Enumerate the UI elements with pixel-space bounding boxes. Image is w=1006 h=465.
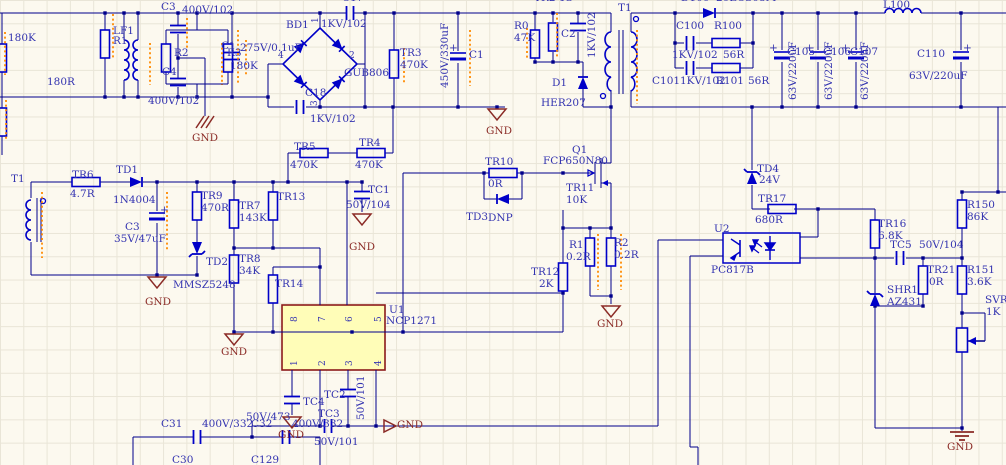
label-val-c3a: 400V/102	[182, 5, 233, 16]
resistor-symbol	[0, 108, 7, 136]
label-val-r101: 56R	[748, 76, 769, 87]
label-val-tr9: 470R	[201, 203, 229, 214]
label-ref-tr3: TR3	[400, 48, 422, 59]
label-val-r0: 47K	[514, 33, 535, 44]
diode-symbol[interactable]	[130, 177, 142, 187]
label-ref-t1-main: T1	[618, 3, 632, 14]
label-ref-shr1: SHR1	[887, 285, 918, 296]
label-val-tr12: 2K	[539, 279, 554, 290]
label-ref-c110: C110	[917, 49, 945, 60]
label-ref-tr8: TR8	[239, 254, 261, 265]
trimpot-wiper-arrow	[968, 337, 985, 345]
diode-symbol[interactable]	[578, 77, 588, 89]
resistor-symbol	[230, 200, 239, 228]
label-plus-c106: +	[805, 43, 814, 54]
label-val-tr10: 0R	[488, 179, 503, 190]
label-ref-c18: C18	[305, 88, 326, 99]
label-ref-tr7: TR7	[239, 201, 261, 212]
label-val-tr21: 0R	[929, 277, 944, 288]
label-part-u1: NCP1271	[386, 316, 437, 327]
label-ref-c100: C100	[676, 21, 704, 32]
label-pin-bd1-4: 4	[278, 51, 284, 62]
label-ref-c129-clipped: C129	[251, 455, 279, 465]
label-val-tr6: 4.7R	[70, 189, 95, 200]
label-ref-lf1: LF1	[113, 26, 134, 37]
label-ref-r0: R0	[514, 21, 529, 32]
resistor-symbol	[958, 266, 967, 294]
label-ref-r100: R100	[714, 21, 742, 32]
transformer-t1-aux-winding[interactable]	[26, 200, 31, 240]
label-val-c18: 1KV/102	[310, 114, 356, 125]
label-part-q1: FCP650N80	[543, 156, 608, 167]
label-val-tc5: 50V/104	[919, 240, 964, 251]
resistor-symbol	[958, 200, 967, 228]
polarity-dot	[634, 17, 639, 22]
label-val-tc3: 50V/101	[314, 437, 359, 448]
label-net-gnd-8: GND	[597, 319, 623, 330]
zener-diode-symbol[interactable]	[867, 291, 883, 306]
label-ref-tr4: TR4	[359, 138, 381, 149]
label-val-td3: DNP	[488, 213, 513, 224]
label-val-tr7: 143K	[239, 213, 267, 224]
label-ref-tr16: TR16	[878, 219, 906, 230]
label-val-c32: 400V/332	[292, 419, 343, 430]
label-ref-tc5: TC5	[890, 240, 912, 251]
label-ref-tr10: TR10	[485, 157, 513, 168]
label-ref-r101: R101	[716, 76, 744, 87]
schematic-canvas[interactable]: 180KR1R2R3180K180RLF1C3400V/102C4400V/10…	[0, 0, 1006, 465]
label-val-c106: 63V/220uF	[824, 41, 835, 100]
label-part-td2: MMSZ5248	[173, 280, 236, 291]
label-part-d100-clipped: 20ECS08M	[716, 0, 776, 4]
label-val-svr1: 1K	[986, 307, 1001, 318]
label-ref-r1-sense: R1	[569, 240, 584, 251]
resistor-symbol	[0, 44, 7, 72]
label-ref-tr11: TR11	[566, 183, 594, 194]
resistor-symbol	[768, 205, 796, 214]
label-val-r2: 180R	[47, 77, 75, 88]
gnd-triangle-symbol	[602, 306, 620, 317]
label-pin-u1-5: 5	[374, 316, 385, 322]
label-ref-d1: D1	[552, 78, 567, 89]
label-net-gnd-1: GND	[192, 133, 218, 144]
resistor-symbol	[101, 30, 110, 58]
label-ref-c31: C31	[161, 419, 182, 430]
label-ref-c101: C101	[652, 76, 680, 87]
label-ref-bd1: BD1	[286, 20, 309, 31]
label-ref-td2: TD2	[206, 257, 228, 268]
label-ref-r2: R2	[174, 48, 189, 59]
label-pin-bd1-2: 2	[349, 51, 355, 62]
label-ref-tr13: TR13	[277, 192, 305, 203]
label-plus-c1-bulk: +	[449, 43, 458, 54]
label-ref-d100-clipped: D100	[681, 0, 709, 4]
label-part-d1: HER207	[541, 98, 586, 109]
label-val-tr3: 470K	[400, 60, 428, 71]
label-val-tr4: 470K	[355, 160, 383, 171]
label-part-bd1: GUB806	[344, 68, 389, 79]
label-ref-c30-clipped: C30	[172, 455, 193, 465]
label-ref-svr1-clipped: SVR1	[985, 295, 1006, 306]
label-ref-tr2-clipped: TR2 1S	[534, 0, 573, 4]
label-pin-u1-7: 7	[318, 316, 329, 322]
label-ref-td1: TD1	[116, 165, 138, 176]
label-ref-r2-sense: R2	[614, 238, 629, 249]
label-ref-c1-in: C1	[221, 41, 236, 52]
label-ref-td3: TD3	[466, 212, 488, 223]
label-pin-u1-4: 4	[374, 360, 385, 366]
label-ref-tc2: TC2	[324, 390, 346, 401]
label-pin-u1-3: 3	[345, 360, 356, 366]
label-val-c100: 1KV/102	[672, 50, 718, 61]
resistor-symbol	[559, 263, 568, 291]
label-val-td4: 24V	[759, 175, 780, 186]
label-ref-c4: C4	[162, 67, 177, 78]
gnd-triangle-symbol	[488, 109, 506, 120]
label-plus-c110: +	[963, 43, 972, 54]
label-part-td1: 1N4004	[113, 195, 156, 206]
label-val-tc1: 50V/104	[346, 200, 391, 211]
label-ref-c17-clipped: C17	[342, 0, 363, 4]
label-net-gnd-2: GND	[486, 126, 512, 137]
resistor-symbol	[357, 149, 385, 158]
label-pin-u1-1: 1	[290, 360, 301, 366]
resistor-symbol	[390, 50, 399, 78]
label-val-c4: 400V/102	[148, 96, 199, 107]
label-part-shr1: AZ431	[887, 297, 922, 308]
label-val-c2: 1KV/102	[587, 12, 598, 58]
label-ref-l100: L100	[883, 0, 910, 11]
label-val-c1-in: 275V/0.1uF	[240, 43, 302, 54]
label-ref-tr17: TR17	[758, 194, 786, 205]
label-ref-tr5: TR5	[294, 142, 316, 153]
label-val-r1-sense: 0.2R	[566, 252, 591, 263]
resistor-symbol	[712, 39, 740, 48]
label-ref-tr9: TR9	[201, 191, 223, 202]
polarity-dot	[601, 94, 606, 99]
label-net-gnd-5: GND	[221, 347, 247, 358]
label-ref-tr12: TR12	[531, 267, 559, 278]
label-part-u2: PC817B	[711, 265, 754, 276]
label-val-tr11: 10K	[566, 195, 587, 206]
label-val-r3: 180K	[230, 61, 258, 72]
resistor-symbol	[712, 64, 740, 73]
label-ref-c3a: C3	[161, 2, 176, 13]
label-plus-c105: +	[769, 43, 778, 54]
label-net-gnd-6: GND	[278, 430, 304, 441]
label-net-gnd-9: GND	[947, 442, 973, 453]
label-ref-tr6: TR6	[72, 170, 94, 181]
label-ref-r150: R150	[967, 200, 995, 211]
label-plus-c3-aux: +	[160, 205, 169, 216]
label-pin-bd1-1: 1	[311, 17, 322, 23]
label-val-c105: 63V/220uF	[788, 41, 799, 100]
label-ref-r1: R1	[113, 36, 128, 47]
label-ref-c1-bulk: C1	[469, 50, 484, 61]
label-val-input-res: 180K	[8, 33, 36, 44]
trimpot-symbol	[957, 328, 968, 352]
label-ref-tc4: TC4	[303, 397, 325, 408]
gnd-triangle-symbol	[148, 277, 166, 288]
label-net-gnd-7: GND	[397, 420, 423, 431]
label-val-c31: 400V/332	[202, 419, 253, 430]
label-val-tc2: 50V/101	[356, 375, 367, 420]
label-plus-c107: +	[841, 43, 850, 54]
label-ref-r151: R151	[967, 265, 995, 276]
label-val-r2-sense: 0.2R	[614, 250, 639, 261]
transformer-t1-primary[interactable]	[605, 32, 611, 91]
label-val-r150: 86K	[967, 212, 988, 223]
label-ref-tc1: TC1	[368, 185, 390, 196]
label-ref-tr21: TR21	[927, 265, 955, 276]
label-val-c3-aux: 35V/47uF	[114, 234, 166, 245]
label-ref-c2: C2	[561, 29, 576, 40]
label-val-r151: 3.6K	[967, 277, 992, 288]
label-ref-c3-aux: C3	[125, 222, 140, 233]
label-pin-u1-6: 6	[345, 316, 356, 322]
capacitor-symbols[interactable]	[149, 6, 969, 444]
inductor-lf1-winding[interactable]	[133, 40, 138, 80]
label-ref-tr14: TR14	[275, 279, 303, 290]
diode-symbol[interactable]	[497, 194, 509, 204]
label-val-tr17: 680R	[755, 215, 783, 226]
label-net-gnd-4: GND	[145, 297, 171, 308]
optocoupler-internals	[731, 236, 775, 260]
label-pin-u1-2: 2	[318, 360, 329, 366]
gnd-triangle-symbol	[225, 334, 243, 345]
diode-symbol[interactable]	[703, 8, 715, 18]
gnd-triangle-symbol	[353, 214, 371, 225]
label-net-gnd-3: GND	[349, 242, 375, 253]
label-pin-u1-8: 8	[290, 316, 301, 322]
label-ref-t1-aux: T1	[11, 174, 25, 185]
label-val-c17: 1KV/102	[321, 19, 367, 30]
label-pin-bd1-3: 3	[310, 100, 321, 106]
label-val-c1-bulk: 450V/330uF	[440, 23, 451, 88]
label-ref-u2: U2	[714, 224, 730, 235]
label-val-c107: 63V/220uF	[860, 41, 871, 100]
label-val-c110: 63V/220uF	[909, 71, 968, 82]
label-val-tr5: 470K	[290, 160, 318, 171]
label-val-r100: 56R	[723, 50, 744, 61]
label-val-tr8: 34K	[239, 266, 260, 277]
label-ref-c32: C32	[251, 419, 272, 430]
resistor-symbol	[489, 169, 517, 178]
zener-diode-symbol[interactable]	[189, 242, 205, 257]
